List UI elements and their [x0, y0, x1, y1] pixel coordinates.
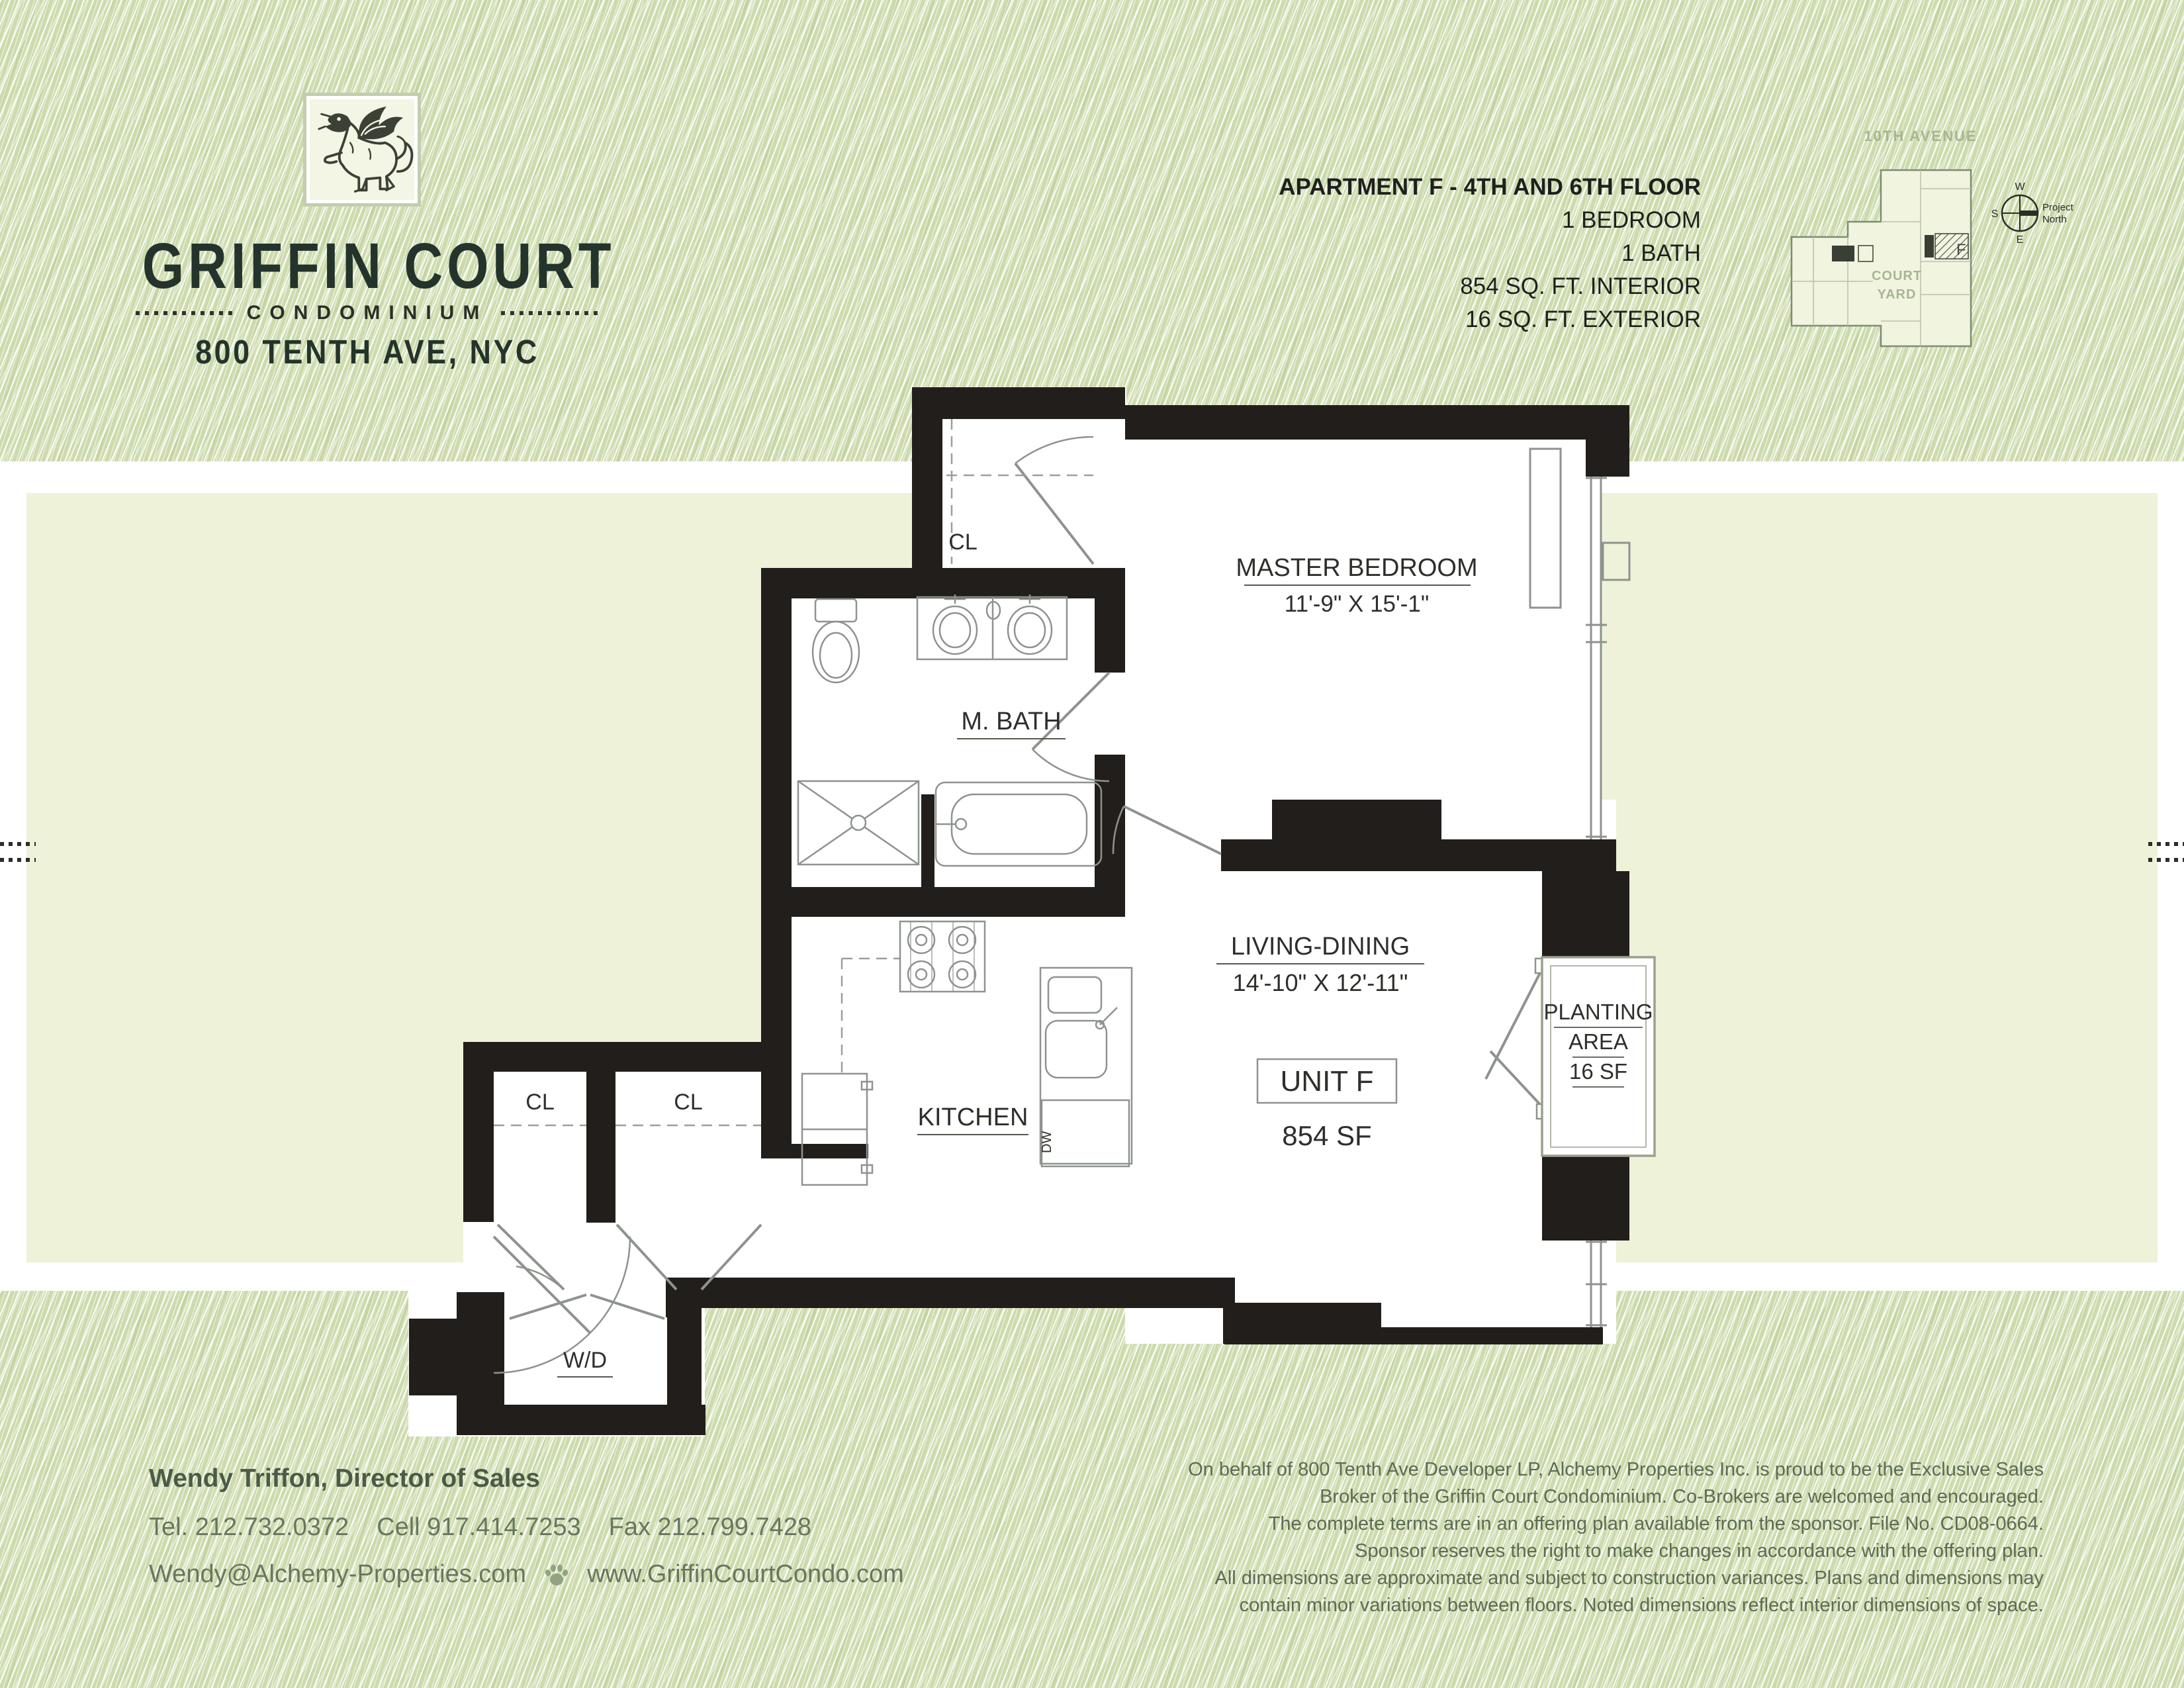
unit-area-label: 854 SF	[1282, 1120, 1371, 1151]
planting-label: 16 SF	[1569, 1059, 1627, 1084]
planting-area-box	[1542, 957, 1655, 1156]
contact-cell: Cell 917.414.7253	[377, 1513, 580, 1542]
contact-email: Wendy@Alchemy-Properties.com	[149, 1560, 526, 1589]
living-dining-dim: 14'-10" X 12'-11"	[1233, 969, 1408, 996]
legal-text: On behalf of 800 Tenth Ave Developer LP,…	[919, 1456, 2044, 1619]
paw-icon	[543, 1562, 570, 1587]
contact-fax: Fax 212.799.7428	[609, 1513, 811, 1542]
washer-dryer-label: W/D	[563, 1348, 607, 1373]
closet-label: CL	[525, 1090, 554, 1115]
planting-label: AREA	[1569, 1029, 1628, 1054]
contact-name: Wendy Triffon, Director of Sales	[149, 1464, 904, 1493]
contact-tel: Tel. 212.732.0372	[149, 1513, 349, 1542]
floor-plan: CL MASTER BEDROOM 11'-9" X 15'-1" M. BAT…	[0, 0, 2184, 1688]
contact-website: www.GriffinCourtCondo.com	[587, 1560, 904, 1589]
master-bedroom-label: MASTER BEDROOM	[1236, 554, 1477, 582]
living-dining-label: LIVING-DINING	[1231, 933, 1410, 961]
closet-label: CL	[948, 530, 977, 555]
master-bath-label: M. BATH	[961, 708, 1061, 735]
contact-block: Wendy Triffon, Director of Sales Tel. 21…	[149, 1464, 904, 1589]
legal-line: Broker of the Griffin Court Condominium.…	[919, 1483, 2044, 1511]
legal-line: All dimensions are approximate and subje…	[919, 1565, 2044, 1592]
closet-label: CL	[674, 1090, 702, 1115]
brochure-page: GRIFFIN COURT CONDOMINIUM 800 TENTH AVE,…	[0, 0, 2184, 1688]
legal-line: The complete terms are in an offering pl…	[919, 1511, 2044, 1538]
legal-line: Sponsor reserves the right to make chang…	[919, 1538, 2044, 1565]
unit-label: UNIT F	[1281, 1065, 1374, 1098]
dishwasher-label: DW	[1040, 1131, 1054, 1153]
planting-label: PLANTING	[1543, 1000, 1653, 1024]
legal-line: contain minor variations between floors.…	[919, 1592, 2044, 1619]
legal-line: On behalf of 800 Tenth Ave Developer LP,…	[919, 1456, 2044, 1483]
master-bedroom-dim: 11'-9" X 15'-1"	[1285, 591, 1430, 617]
kitchen-label: KITCHEN	[918, 1103, 1028, 1131]
